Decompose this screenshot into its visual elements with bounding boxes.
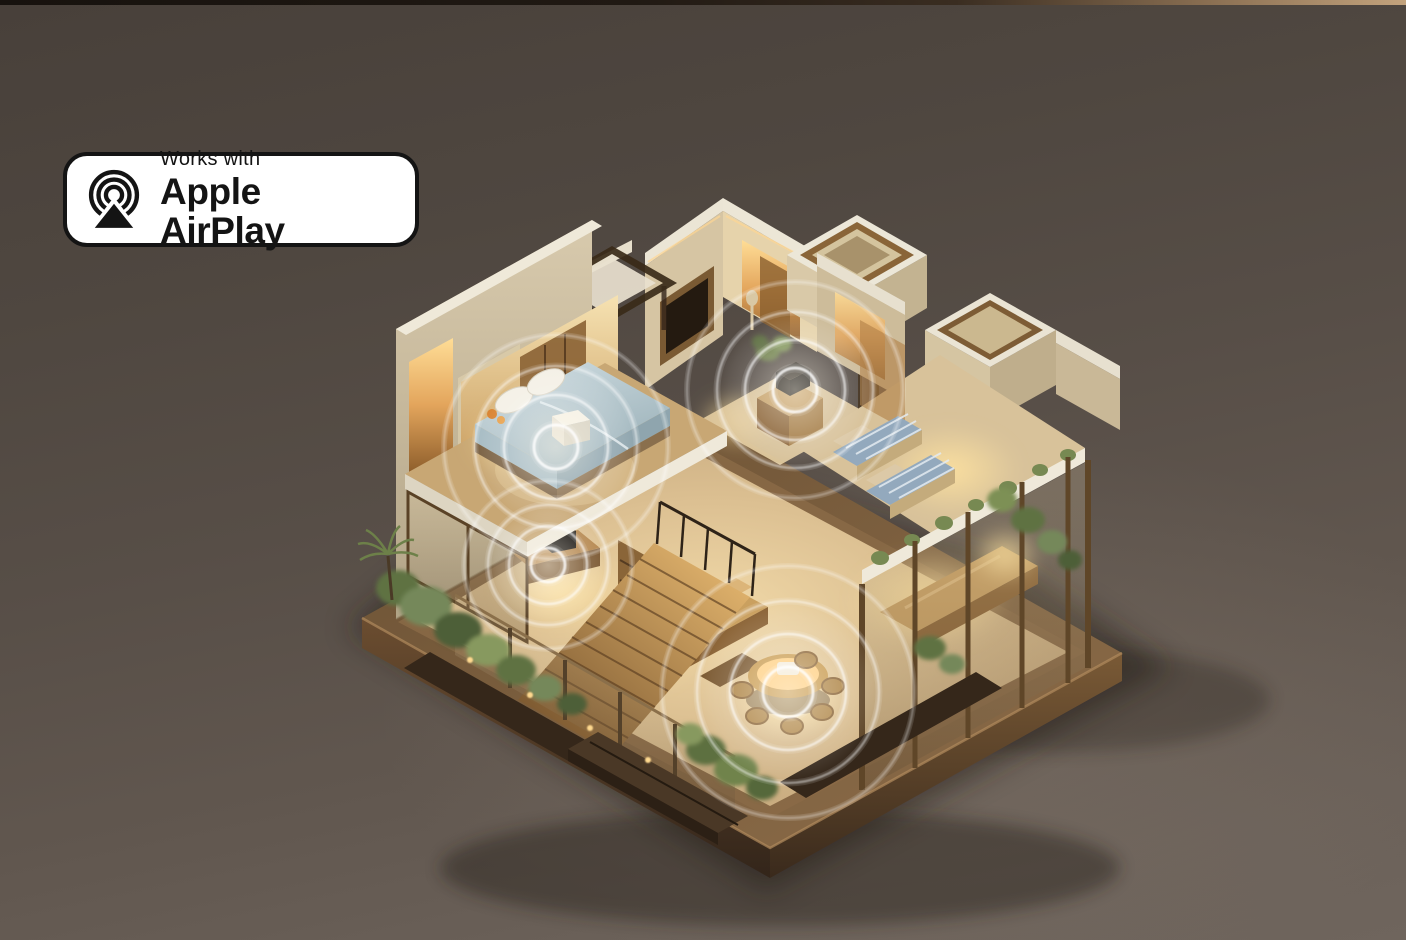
smart-home-cutaway-illustration bbox=[0, 0, 1406, 940]
hallway-speaker-waves bbox=[687, 282, 903, 498]
study-speaker-waves bbox=[464, 481, 632, 649]
scene-stage: Works with Apple AirPlay bbox=[0, 0, 1406, 940]
airplay-speaker-icon bbox=[83, 166, 145, 234]
badge-subtitle: Works with bbox=[160, 149, 393, 170]
dining-speaker-waves bbox=[662, 566, 914, 818]
works-with-apple-airplay-badge: Works with Apple AirPlay bbox=[63, 152, 419, 247]
badge-title: Apple AirPlay bbox=[160, 173, 393, 251]
